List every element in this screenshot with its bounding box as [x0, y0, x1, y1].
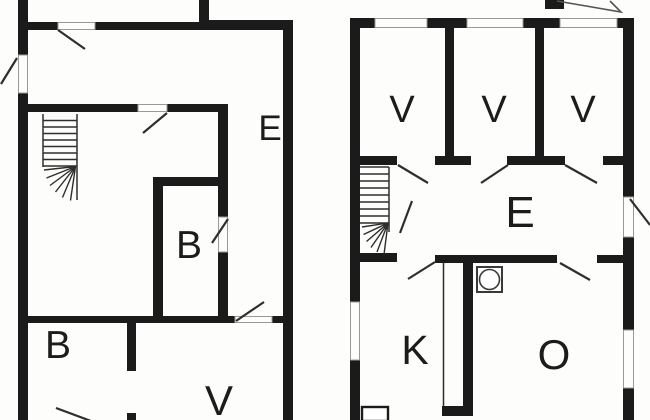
entrance-arrow-icon	[557, 1, 621, 12]
door-swing-e-lower	[236, 302, 264, 321]
room-label-v2: V	[481, 89, 507, 131]
door-swing-bottom-left	[56, 408, 91, 420]
door-swing-entrance	[1, 58, 17, 84]
door-swing-v1	[398, 165, 428, 183]
door-swing-stairs	[400, 201, 412, 233]
left-floor-plan: E B B V	[1, 0, 293, 420]
left-plan-door-jambs	[19, 23, 273, 323]
stair-treads	[43, 121, 77, 167]
entrance-annotation	[545, 0, 621, 12]
staircase-left-icon	[43, 114, 77, 201]
right-plan-walls	[350, 18, 634, 420]
door-swing-v3	[565, 165, 597, 183]
stove-icon	[477, 267, 502, 292]
stair-winder-rays	[362, 223, 388, 255]
room-label-k: K	[401, 327, 428, 373]
door-swing-k	[408, 262, 435, 279]
room-label-o: O	[538, 331, 571, 378]
room-label-v3: V	[570, 89, 596, 131]
door-swing-b-inner	[212, 219, 228, 243]
floor-plan-drawing: E B B V V V	[0, 0, 650, 420]
stair-winder-rays	[44, 167, 76, 201]
room-label-e: E	[505, 188, 534, 237]
door-swing-hall	[143, 113, 167, 133]
staircase-right-icon	[360, 167, 389, 255]
floor-plan-canvas: E B B V V V	[0, 0, 650, 420]
door-swing-upper-room	[58, 30, 85, 49]
stove-square	[477, 267, 502, 292]
room-label-b-lower: B	[45, 324, 71, 367]
room-label-v-lower: V	[205, 377, 233, 420]
bottom-fixture	[362, 407, 388, 420]
right-plan-window-jambs	[351, 19, 634, 389]
room-label-e: E	[258, 109, 281, 148]
room-label-b-inner: B	[176, 224, 202, 267]
room-label-v1: V	[389, 89, 415, 131]
door-swing-o	[560, 263, 590, 280]
right-floor-plan: V V V E K O	[350, 18, 650, 420]
stair-treads	[360, 167, 389, 223]
door-swing-v2	[481, 165, 508, 183]
